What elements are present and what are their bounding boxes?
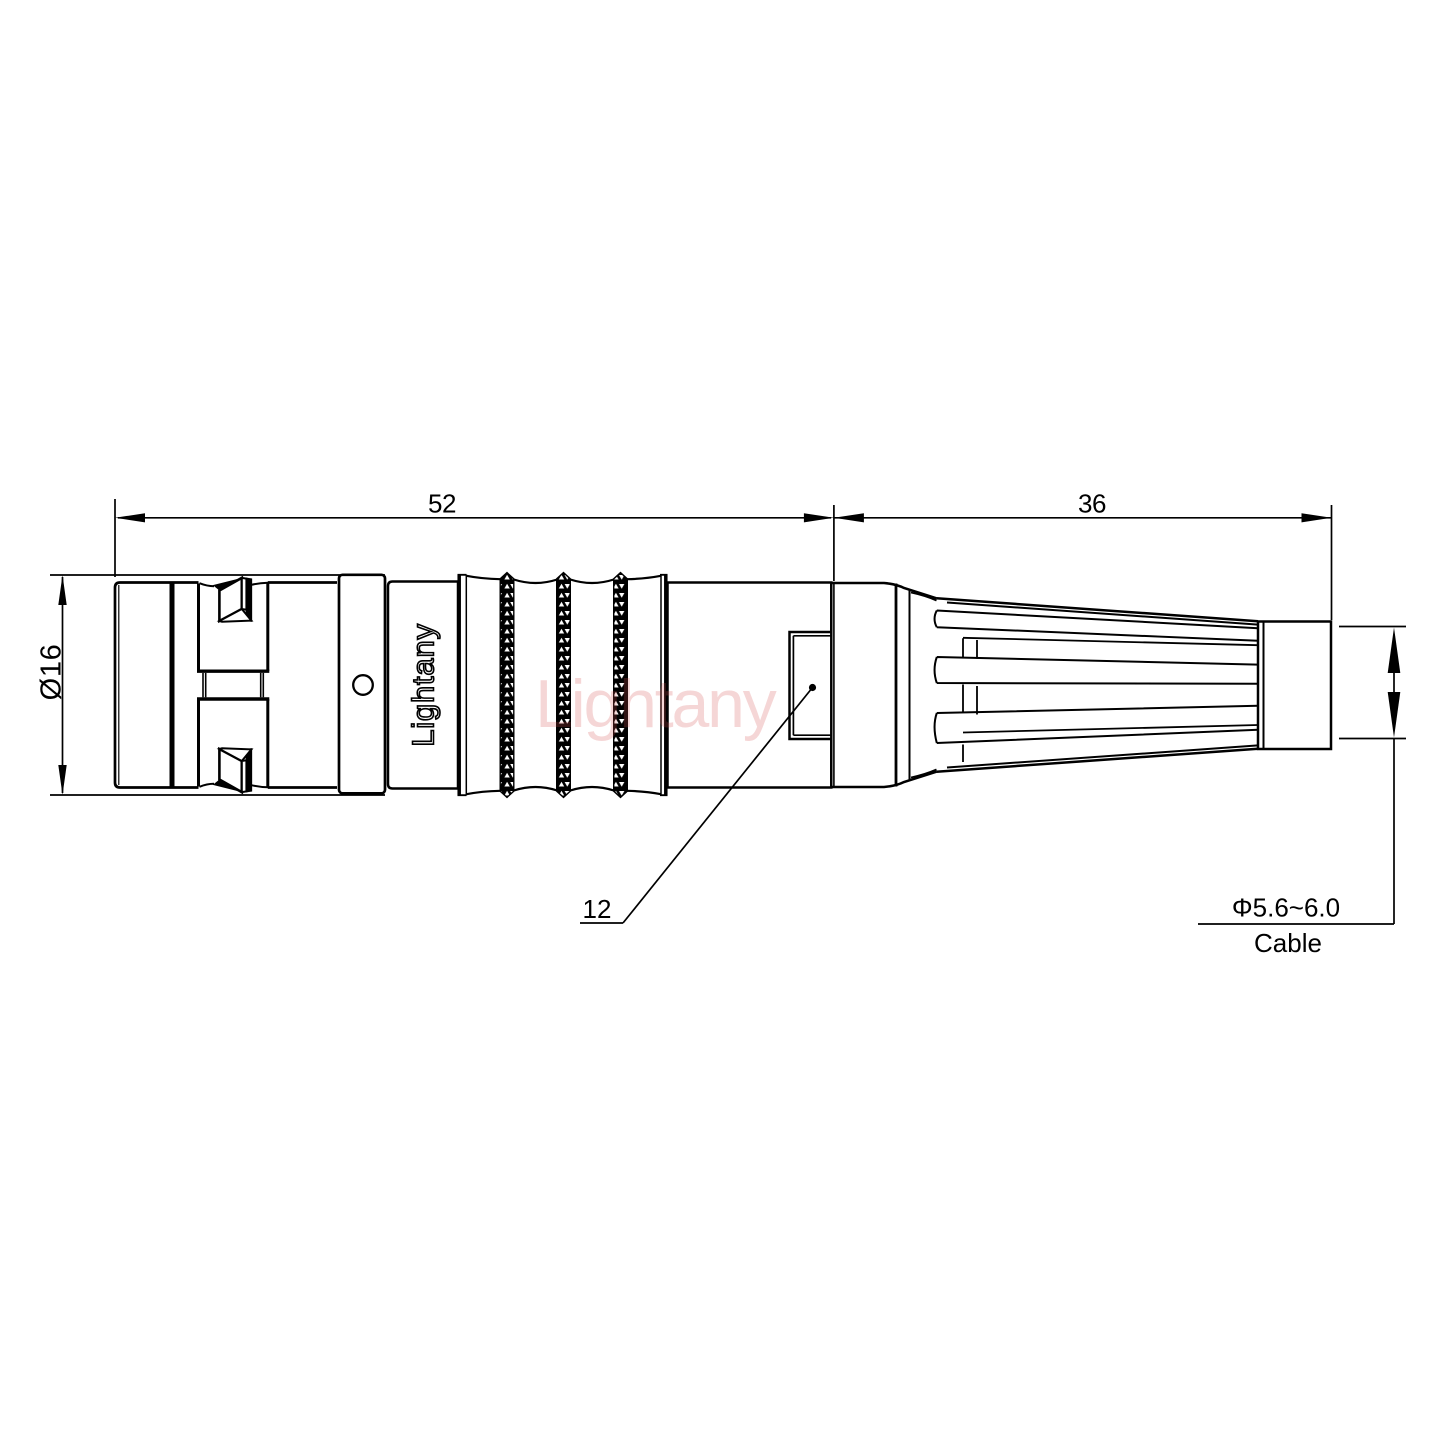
svg-text:Ø16: Ø16 — [36, 644, 68, 701]
svg-text:Φ5.6~6.0: Φ5.6~6.0 — [1232, 893, 1340, 923]
svg-text:Cable: Cable — [1254, 928, 1322, 958]
svg-text:52: 52 — [428, 489, 456, 519]
svg-text:Lightany: Lightany — [535, 666, 777, 742]
svg-text:Lightany: Lightany — [406, 623, 441, 747]
svg-text:36: 36 — [1078, 489, 1106, 519]
svg-text:12: 12 — [583, 894, 612, 924]
